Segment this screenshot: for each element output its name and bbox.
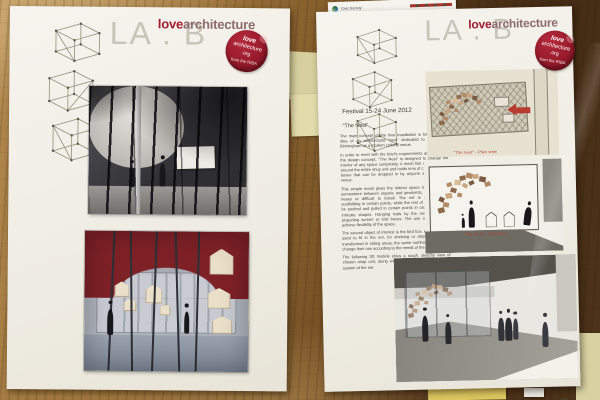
civic-society-label: Civic Society xyxy=(341,6,362,11)
brand-love: love xyxy=(158,16,183,31)
person-silhouette xyxy=(420,307,430,341)
poster-right: LA . B lovearchitecture love architectur… xyxy=(316,6,581,392)
love-architecture-wordmark: lovearchitecture xyxy=(468,16,558,32)
render-red-canopy-interior xyxy=(84,231,249,372)
elevation-caption: "The Nest" - Elevation xyxy=(464,231,508,237)
project-title: "The Nest" xyxy=(343,123,369,130)
brand-love: love xyxy=(468,17,492,32)
love-architecture-sticker: love architecture .org from the RIBA xyxy=(221,25,272,76)
bird-box-cluster xyxy=(432,87,488,136)
entrance-arrow xyxy=(516,107,530,113)
poster-left: LA . B lovearchitecture love architectur… xyxy=(7,6,290,391)
column xyxy=(542,158,563,221)
plan-furniture xyxy=(495,97,508,105)
render-dark-interior xyxy=(88,86,247,215)
bird-box-outline xyxy=(485,212,496,227)
person-silhouette xyxy=(467,201,476,228)
love-architecture-sticker: love architecture .org from the RIBA xyxy=(531,27,579,75)
shading xyxy=(88,86,247,215)
handwriting-scribble xyxy=(578,335,600,400)
plan-caption: "The nest" - Plan view xyxy=(454,149,498,155)
brand-architecture: architecture xyxy=(491,16,558,32)
street-wall xyxy=(534,69,550,158)
small-white-tab xyxy=(524,388,544,397)
card-fine-print xyxy=(410,3,452,7)
render-plan-view: "The nest" - Plan view xyxy=(425,69,559,158)
person-silhouette xyxy=(511,311,520,339)
person-silhouette xyxy=(540,313,550,347)
render-perspective xyxy=(394,254,579,382)
building-edge xyxy=(556,254,578,331)
photo-scene: LA . B lovearchitecture love architectur… xyxy=(0,0,600,400)
person-silhouette xyxy=(444,314,453,344)
child-silhouette xyxy=(460,214,465,228)
render-elevation: "The Nest" - Elevation xyxy=(423,158,563,253)
bird-box-outline xyxy=(503,212,514,227)
shading xyxy=(84,231,249,372)
